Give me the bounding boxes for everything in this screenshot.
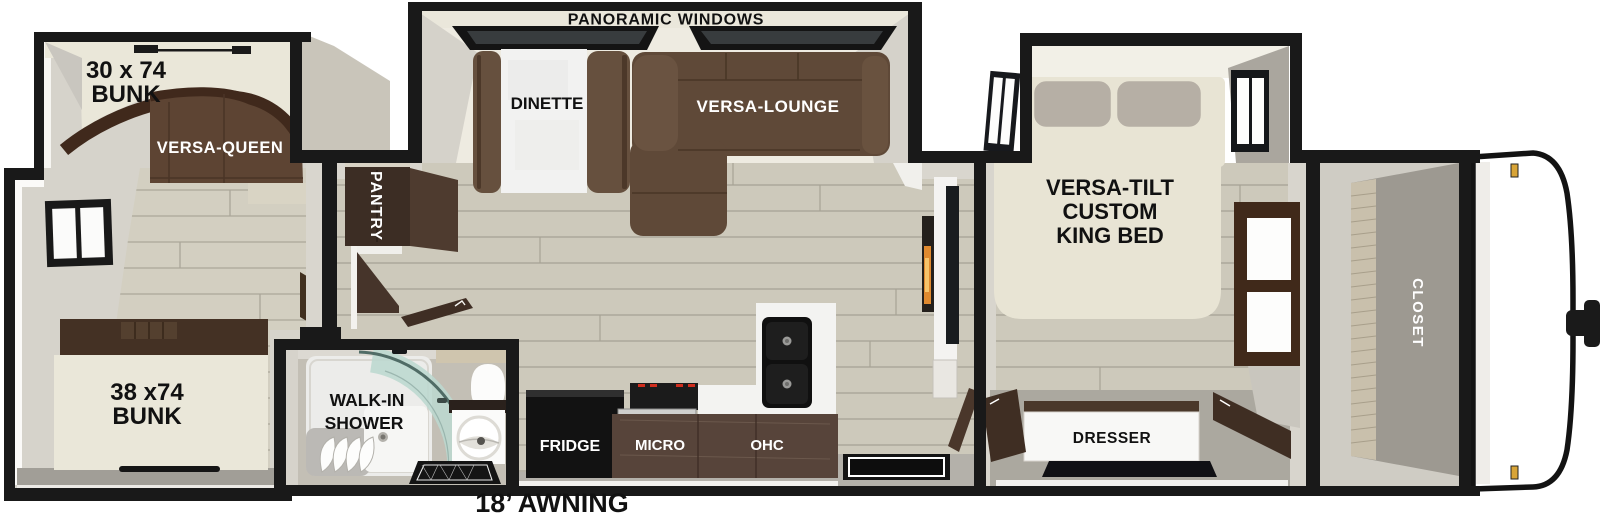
svg-text:BUNK: BUNK (91, 81, 161, 108)
svg-text:FRIDGE: FRIDGE (540, 438, 601, 455)
svg-text:VERSA-TILT: VERSA-TILT (1046, 175, 1174, 200)
svg-text:38 x74: 38 x74 (110, 379, 184, 406)
svg-text:18’ AWNING: 18’ AWNING (475, 488, 629, 516)
svg-text:CLOSET: CLOSET (1409, 278, 1426, 348)
svg-text:VERSA-LOUNGE: VERSA-LOUNGE (697, 97, 840, 116)
svg-text:CUSTOM: CUSTOM (1063, 199, 1158, 224)
svg-text:30 x 74: 30 x 74 (86, 57, 167, 84)
svg-text:BUNK: BUNK (112, 403, 182, 430)
svg-text:OHC: OHC (750, 437, 784, 454)
svg-text:PANTRY: PANTRY (367, 171, 384, 241)
svg-text:DINETTE: DINETTE (511, 94, 584, 113)
svg-text:VERSA-QUEEN: VERSA-QUEEN (157, 139, 284, 157)
svg-text:PANORAMIC WINDOWS: PANORAMIC WINDOWS (568, 12, 764, 29)
svg-text:DRESSER: DRESSER (1073, 430, 1151, 447)
svg-text:MICRO: MICRO (635, 437, 685, 454)
svg-text:SHOWER: SHOWER (325, 413, 404, 433)
svg-text:KING BED: KING BED (1056, 223, 1164, 248)
svg-text:WALK-IN: WALK-IN (330, 390, 405, 410)
